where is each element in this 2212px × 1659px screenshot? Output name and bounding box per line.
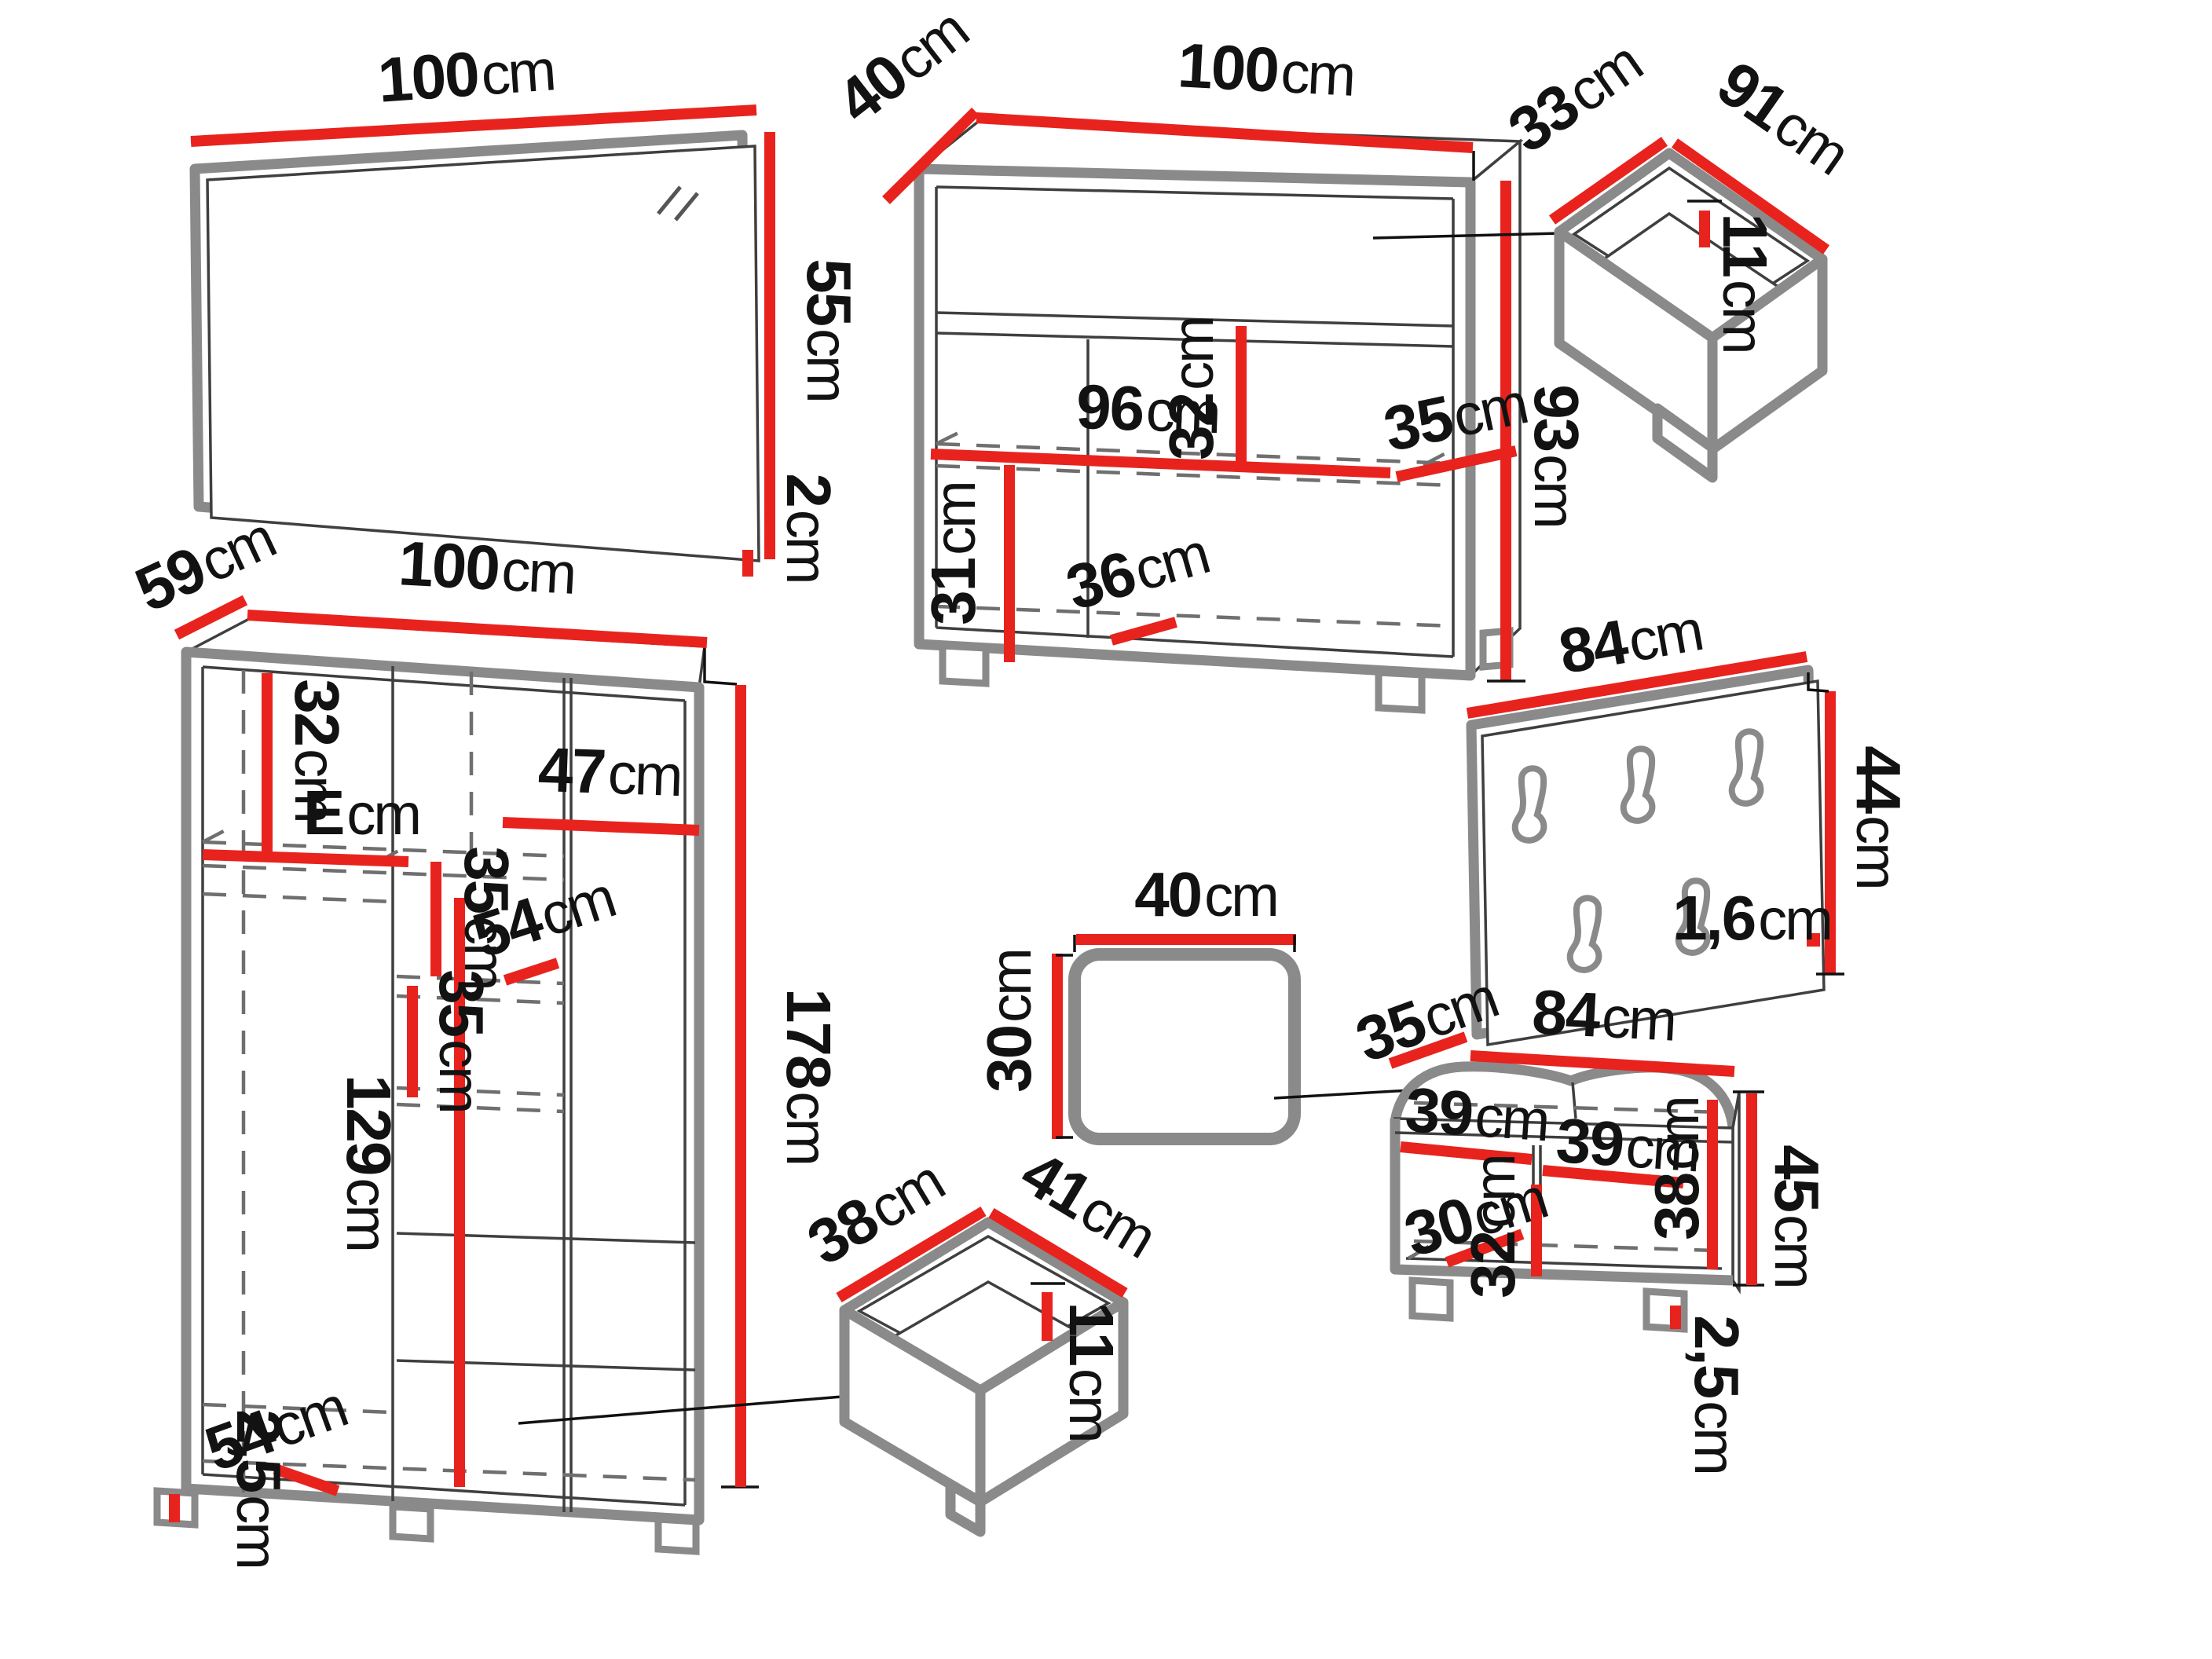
furniture-dimension-diagram: 100cm 55cm 2cm 40cm 100cm 93cm 96cm 32cm… [0,0,2212,1659]
wardrobe-upper-shelf-label: Ecm [303,778,419,848]
wardrobe-width-label: 100cm [397,528,576,607]
stool-width-label: 40cm [1134,859,1277,929]
stool: 40cm 30cm [974,859,1423,1139]
diagram-canvas: 100cm 55cm 2cm 40cm 100cm 93cm 96cm 32cm… [0,0,2212,1659]
bench-height-label: 45cm [1762,1144,1832,1287]
wardrobe-right-shelf-line [503,822,699,830]
stool-height-label: 30cm [974,950,1044,1093]
wardrobe-shelf-gap-lower-label: 35cm [427,969,496,1112]
wardrobe-leg-mid [393,1507,430,1539]
small-drawer-height-label: 11cm [1057,1302,1126,1441]
wardrobe-leg-right [658,1519,696,1551]
top-drawer-height-label: 11cm [1710,213,1780,352]
coat-rack-thickness-label: 1,6cm [1672,883,1831,953]
bench-inner-height-label: 38cm [1642,1097,1712,1240]
wardrobe-ticks [705,648,759,1487]
bench-leg-height-label: 2,5cm [1682,1315,1752,1474]
bench-leg-left [1412,1280,1450,1318]
wardrobe-height-label: 178cm [774,988,844,1164]
sideboard-height-label: 93cm [1522,384,1591,527]
small-drawer: 38cm 41cm 11cm [796,1137,1168,1532]
sideboard-leg-right [1379,672,1422,710]
mirror-thickness-label: 2cm [774,473,844,582]
mirror-width-label: 100cm [375,33,556,115]
coat-rack-height-label: 44cm [1844,745,1914,888]
sideboard-leg-left [943,646,986,683]
wardrobe: 59cm 100cm 32cm Ecm 47cm 35cm 54cm 35cm … [125,501,844,1568]
wardrobe-upper-shelf-line [203,855,408,862]
bench-left-compartment-label: 39cm [1403,1075,1550,1154]
mirror: 100cm 55cm 2cm [191,33,864,582]
bench: 35cm 84cm 39cm 39cm 38cm 32cm 30cm 45cm … [1347,961,1832,1474]
sideboard-lower-height-label: 31cm [918,482,988,625]
wardrobe-depth-label: 59cm [125,501,284,624]
wardrobe-hanging-height-label: 129cm [334,1075,404,1251]
sideboard-upper-height-label: 32cm [1156,317,1226,460]
mirror-glass-pane [207,146,759,561]
top-drawer-width-label: 91cm [1705,48,1862,187]
sideboard-width-label: 100cm [1176,30,1355,109]
sideboard-depth-label: 40cm [824,0,980,137]
stool-seat [1075,954,1295,1139]
wardrobe-right-shelf-label: 47cm [537,734,683,809]
bench-width-label: 84cm [1530,976,1676,1053]
mirror-height-label: 55cm [794,258,864,401]
